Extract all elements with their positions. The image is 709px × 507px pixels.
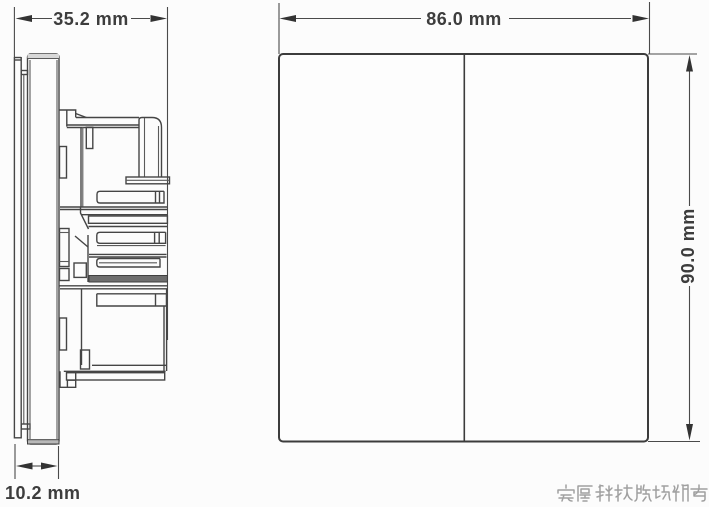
svg-text:35.2 mm: 35.2 mm xyxy=(53,9,129,29)
svg-text:86.0 mm: 86.0 mm xyxy=(426,9,502,29)
svg-text:90.0 mm: 90.0 mm xyxy=(678,208,698,284)
svg-text:10.2 mm: 10.2 mm xyxy=(5,483,81,503)
